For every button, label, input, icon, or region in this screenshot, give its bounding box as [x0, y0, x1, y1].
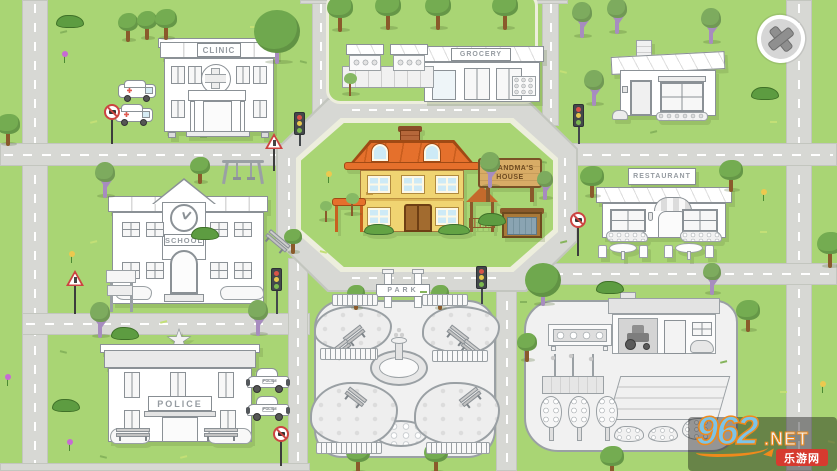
- flower-stem: [7, 379, 9, 386]
- traffic-light-icon: [294, 112, 305, 146]
- window: [171, 100, 185, 118]
- ambulance-roof: [121, 104, 143, 112]
- tree-part: [342, 92, 360, 96]
- tree-icon: [719, 160, 742, 192]
- grass-tuft: [560, 69, 568, 74]
- tree-part: [344, 212, 362, 216]
- tree-icon: [337, 60, 363, 96]
- park-column-cap: [412, 269, 424, 274]
- flower-icon: [68, 251, 75, 263]
- bush-icon: [52, 399, 80, 412]
- window: [188, 66, 202, 84]
- traffic-light-green: [274, 284, 279, 289]
- swing-leg: [222, 161, 229, 184]
- bench-leg: [279, 249, 283, 254]
- fountain-rim: [379, 357, 419, 378]
- floor-divider: [360, 198, 464, 201]
- car-bumper: [246, 379, 250, 386]
- road-right-vertical: [786, 0, 812, 471]
- sign-pole: [280, 440, 282, 466]
- window: [170, 372, 186, 398]
- tree-icon: [698, 8, 724, 44]
- bush-icon: [438, 224, 470, 235]
- wheel: [275, 385, 283, 393]
- grass-tuft: [300, 59, 308, 64]
- fruit-trunk: [577, 427, 582, 441]
- billboard-board: [107, 285, 133, 296]
- flower-icon: [66, 439, 73, 451]
- wheel: [253, 413, 261, 421]
- bush-icon: [111, 327, 139, 340]
- ring-dash-right: [564, 158, 566, 232]
- cafe-chair: [598, 245, 607, 258]
- tree-part: [0, 114, 20, 134]
- bench-leg: [361, 333, 365, 338]
- bench-leg: [477, 395, 481, 400]
- tree-icon: [535, 171, 556, 200]
- tree-part: [95, 162, 115, 182]
- flower-head: [820, 381, 826, 387]
- sign-pole: [273, 147, 275, 171]
- window: [253, 66, 267, 84]
- tree-part: [346, 193, 359, 205]
- grass-tuft: [520, 300, 527, 303]
- police-car-label: POLICE: [262, 407, 273, 411]
- traffic-light-green: [479, 282, 484, 287]
- flower-head: [69, 251, 75, 257]
- fountain-pedestal: [395, 342, 403, 360]
- flower-head: [62, 51, 68, 57]
- school-steps: [164, 294, 204, 302]
- bench-leg: [265, 237, 269, 242]
- car-bumper: [246, 407, 250, 414]
- wheel: [143, 95, 150, 102]
- police-car[interactable]: POLICE: [246, 368, 290, 395]
- fence-icon: [320, 348, 378, 360]
- bench-leg: [145, 436, 147, 441]
- gazebo-roof: [466, 186, 498, 202]
- house-door: [630, 80, 652, 116]
- traffic-light-pole: [481, 288, 484, 304]
- clinic-porch-roof: [188, 90, 246, 101]
- ambulance-roof: [124, 80, 146, 88]
- tree-icon: [569, 2, 595, 38]
- swing-seat: [233, 177, 241, 180]
- ambulance[interactable]: [115, 104, 157, 128]
- stall-awning: [390, 44, 428, 55]
- tree-icon: [339, 180, 365, 216]
- window: [234, 262, 252, 279]
- ambulance-window: [145, 87, 153, 94]
- traffic-light-icon: [573, 104, 584, 144]
- flower-stem: [763, 194, 765, 201]
- grass-tuft: [420, 290, 427, 293]
- bed-leg: [551, 346, 556, 351]
- watermark-net: .NET: [764, 429, 809, 450]
- tree-icon: [327, 0, 353, 32]
- flower-icon: [760, 189, 767, 201]
- tree-icon: [155, 9, 177, 40]
- tree-part: [572, 2, 592, 22]
- swing-seat: [247, 177, 255, 180]
- flower-icon: [61, 51, 68, 63]
- watermark: 962 .NET 乐游网: [688, 417, 837, 471]
- grass-tuft: [90, 239, 98, 244]
- traffic-light-green: [297, 128, 302, 133]
- swing-set: [222, 160, 264, 184]
- flower-icon: [325, 171, 332, 183]
- tree-icon: [492, 0, 518, 30]
- tree-part: [580, 166, 603, 186]
- fruit-canopy: [596, 396, 618, 428]
- grass-tuft: [650, 129, 658, 134]
- restaurant-sign: RESTAURANT: [628, 168, 696, 185]
- police-sign: POLICE: [148, 396, 212, 411]
- window: [253, 100, 267, 118]
- flower-stem: [69, 444, 71, 451]
- cafe-chair: [639, 245, 648, 258]
- window: [368, 208, 390, 225]
- tree-part: [584, 70, 604, 90]
- stone-base: [656, 112, 708, 121]
- wheel: [124, 95, 131, 102]
- tree-icon: [375, 0, 401, 30]
- bench-leg: [466, 403, 470, 408]
- tree-part: [607, 0, 627, 18]
- lantern-icon: [648, 212, 653, 221]
- bed-leg: [603, 346, 608, 351]
- tree-icon: [604, 0, 630, 34]
- tractor-wheel: [643, 343, 650, 350]
- flower-stem: [822, 386, 824, 393]
- tree-icon: [580, 166, 603, 198]
- mailbox: [622, 86, 628, 93]
- road-grocery-right: [542, 0, 559, 126]
- school-clock: [170, 204, 198, 232]
- warning-sign-icon: [66, 270, 84, 314]
- window: [146, 222, 164, 237]
- window: [124, 372, 140, 398]
- traffic-light-pole: [276, 290, 279, 314]
- sign-pole: [577, 226, 579, 256]
- tree-part: [327, 0, 353, 18]
- stall-awning: [346, 44, 384, 55]
- tree-part: [600, 446, 623, 466]
- ambulance[interactable]: [118, 80, 160, 104]
- farm-door: [664, 320, 686, 354]
- window: [171, 66, 185, 84]
- fruit-trunk: [549, 427, 554, 441]
- tree-icon: [477, 152, 503, 188]
- no-parking-sign-icon: [570, 212, 586, 256]
- tree-part: [254, 10, 299, 53]
- bush-icon: [751, 87, 779, 100]
- window: [146, 262, 164, 279]
- wheel: [275, 413, 283, 421]
- police-roofband: [104, 350, 256, 368]
- clinic-cross-icon: [205, 74, 226, 83]
- bench-leg: [356, 403, 360, 408]
- no-parking-sign-icon: [273, 426, 289, 466]
- grass-tuft: [770, 120, 777, 123]
- flower-head: [67, 439, 73, 445]
- grocery-panel: [464, 68, 490, 100]
- tree-part: [344, 73, 357, 85]
- sign-glyph: [273, 140, 276, 146]
- tree-part: [719, 160, 742, 180]
- traffic-light-red: [274, 271, 279, 276]
- watermark-swoosh-icon: [696, 443, 768, 457]
- ambulance-window: [142, 111, 150, 118]
- fence-icon: [432, 350, 488, 362]
- window: [234, 222, 252, 237]
- fence-icon: [332, 294, 378, 306]
- berry-bush: [648, 426, 678, 442]
- tree-part: [701, 8, 721, 28]
- bush-icon: [56, 15, 84, 28]
- bench-back: [116, 428, 150, 432]
- clock-hand: [182, 212, 186, 219]
- traffic-light-green: [576, 120, 581, 125]
- grass-tuft: [100, 454, 108, 459]
- grass-tuft: [60, 29, 68, 34]
- fence-icon: [426, 442, 490, 454]
- stone-pile: [612, 110, 628, 120]
- bush-icon: [596, 281, 624, 294]
- tree-part: [525, 263, 561, 298]
- flower-hedge: [606, 231, 648, 242]
- bench-leg: [119, 436, 121, 441]
- tomato-bed-box: [542, 376, 604, 394]
- fountain-bowl: [391, 337, 407, 344]
- produce-dots: [396, 59, 422, 66]
- small-house[interactable]: [612, 38, 724, 122]
- traffic-light-yellow: [576, 113, 581, 118]
- grocery-crate: [512, 76, 536, 96]
- flower-hedge: [680, 231, 722, 242]
- tree-part: [703, 263, 721, 281]
- flower-head: [5, 374, 11, 380]
- flower-head: [761, 189, 767, 195]
- cafe-table-leg: [687, 251, 691, 260]
- tree-part: [190, 157, 210, 174]
- fruit-trunk: [605, 427, 610, 441]
- restaurant-window: [610, 209, 646, 232]
- tree-icon: [581, 70, 607, 106]
- bench-leg: [207, 436, 209, 441]
- traffic-light-red: [479, 269, 484, 274]
- traffic-light-icon: [271, 268, 282, 314]
- bench-leg: [447, 333, 451, 338]
- window: [122, 222, 140, 237]
- window: [436, 176, 458, 193]
- traffic-light-red: [576, 107, 581, 112]
- front-door: [404, 204, 432, 232]
- window: [402, 176, 424, 193]
- farm-window: [692, 322, 712, 336]
- swing-rope: [236, 163, 238, 177]
- clinic-step: [186, 131, 250, 137]
- tree-part: [155, 9, 177, 28]
- park-tree-cluster: [414, 382, 500, 446]
- traffic-light-pole: [299, 134, 302, 146]
- window: [210, 262, 228, 279]
- flower-head: [326, 171, 332, 177]
- tree-part: [320, 201, 332, 211]
- tree-part: [517, 333, 538, 351]
- road-lower-left-vertical: [288, 258, 308, 471]
- traffic-light-icon: [476, 266, 487, 304]
- no-parking-sign-icon: [104, 104, 120, 144]
- car-bumper: [286, 379, 290, 386]
- traffic-light-yellow: [479, 275, 484, 280]
- bench-back: [204, 428, 238, 432]
- tree-part: [537, 171, 553, 187]
- sign-pole: [111, 118, 113, 144]
- tractor-wheel: [625, 339, 636, 350]
- car-bumper: [286, 407, 290, 414]
- town-map: CLINIC GROC: [0, 0, 837, 471]
- grass-tuft: [780, 390, 787, 393]
- window: [368, 176, 390, 193]
- raised-bed: [548, 324, 612, 346]
- farmhouse-roof: [608, 298, 720, 314]
- veggie-dots: [553, 329, 607, 342]
- tree-part: [736, 300, 759, 320]
- tree-icon: [425, 0, 451, 30]
- window: [236, 66, 250, 84]
- grass-tuft: [180, 454, 188, 459]
- fruit-canopy: [540, 396, 562, 428]
- tree-icon: [817, 232, 837, 268]
- berry-bush: [614, 426, 644, 442]
- tree-part: [248, 300, 268, 320]
- bench-leg: [233, 436, 235, 441]
- billboard-board: [106, 270, 136, 283]
- sign-pole: [74, 284, 76, 314]
- tree-part: [90, 302, 110, 322]
- bush-icon: [191, 227, 219, 240]
- flower-icon: [819, 381, 826, 393]
- bench-icon: [116, 428, 150, 440]
- flower-stem: [64, 56, 66, 63]
- farm-garage: [618, 318, 658, 354]
- grandmas-sign-post: [486, 186, 490, 202]
- bench-leg: [345, 395, 349, 400]
- swing-leg: [257, 161, 264, 184]
- wheel: [140, 119, 147, 126]
- clinic-porch-column: [240, 101, 245, 132]
- tree-icon: [527, 263, 558, 306]
- traffic-light-yellow: [274, 277, 279, 282]
- clinic-sign: CLINIC: [197, 43, 241, 57]
- tree-icon: [600, 446, 623, 471]
- tree-part: [492, 0, 518, 16]
- shed-door: [507, 217, 537, 235]
- tree-part: [375, 0, 401, 16]
- police-doors: [162, 417, 198, 442]
- fence-icon: [316, 442, 382, 454]
- dormer-window: [372, 144, 388, 161]
- tree-icon: [118, 13, 139, 42]
- bush-icon: [478, 213, 506, 226]
- grandmas-sign-post: [530, 186, 534, 202]
- fence-icon: [422, 294, 468, 306]
- police-car[interactable]: POLICE: [246, 396, 290, 423]
- watermark-cn-badge: 乐游网: [776, 449, 828, 466]
- tree-icon: [314, 190, 337, 222]
- window: [218, 372, 234, 398]
- tree-icon: [190, 157, 210, 184]
- clinic-porch-column: [190, 101, 195, 132]
- restaurant-window: [682, 209, 718, 232]
- dormer-window: [424, 144, 440, 161]
- tree-icon: [87, 302, 113, 338]
- tree-icon: [700, 263, 723, 295]
- tree-part: [425, 0, 451, 16]
- restaurant-building[interactable]: RESTAURANT: [596, 166, 732, 262]
- warning-sign-icon: [265, 133, 283, 171]
- bay-window: [660, 82, 704, 112]
- cafe-chair: [664, 245, 673, 258]
- flower-stem: [328, 176, 330, 183]
- clinic-foot: [168, 132, 176, 138]
- wheel: [253, 385, 261, 393]
- fruit-canopy: [568, 396, 590, 428]
- tree-part: [118, 13, 139, 31]
- fruit-tree-icon: [568, 396, 590, 442]
- tree-icon: [258, 10, 297, 64]
- clinic-doors: [203, 101, 232, 132]
- ring-dash-top: [352, 109, 502, 111]
- tree-part: [817, 232, 837, 254]
- cafe-chair: [705, 245, 714, 258]
- grocery-door: [432, 70, 456, 100]
- tree-icon: [0, 114, 20, 146]
- sketch-bush: [220, 286, 264, 300]
- tree-icon: [245, 300, 271, 336]
- hay-pile: [690, 340, 714, 353]
- park-column-cap: [382, 269, 394, 274]
- school-door: [170, 250, 198, 294]
- swing-rope: [250, 163, 252, 177]
- traffic-light-red: [297, 115, 302, 120]
- roof-eave: [344, 162, 480, 170]
- window: [436, 208, 458, 225]
- cafe-table-leg: [621, 251, 625, 260]
- bush-icon: [364, 224, 394, 235]
- flower-icon: [4, 374, 11, 386]
- bench-icon: [204, 428, 238, 440]
- tree-part: [480, 152, 500, 172]
- fountain-spray: [394, 328, 404, 337]
- grass-tuft: [760, 230, 767, 233]
- fruit-tree-icon: [540, 396, 562, 442]
- traffic-light-yellow: [297, 121, 302, 126]
- traffic-light-pole: [578, 126, 581, 144]
- grass-tuft: [60, 349, 68, 354]
- tomato-plants: [546, 354, 602, 376]
- grocery-sign: GROCERY: [451, 48, 511, 61]
- road-bottom-strip: [0, 463, 310, 471]
- grass-tuft: [90, 119, 98, 124]
- tree-icon: [517, 333, 538, 362]
- wheel: [121, 119, 128, 126]
- tree-icon: [736, 300, 759, 332]
- ring-dash-left: [288, 158, 290, 232]
- road-top-horizontal-right: [560, 143, 837, 166]
- tree-icon: [92, 162, 118, 198]
